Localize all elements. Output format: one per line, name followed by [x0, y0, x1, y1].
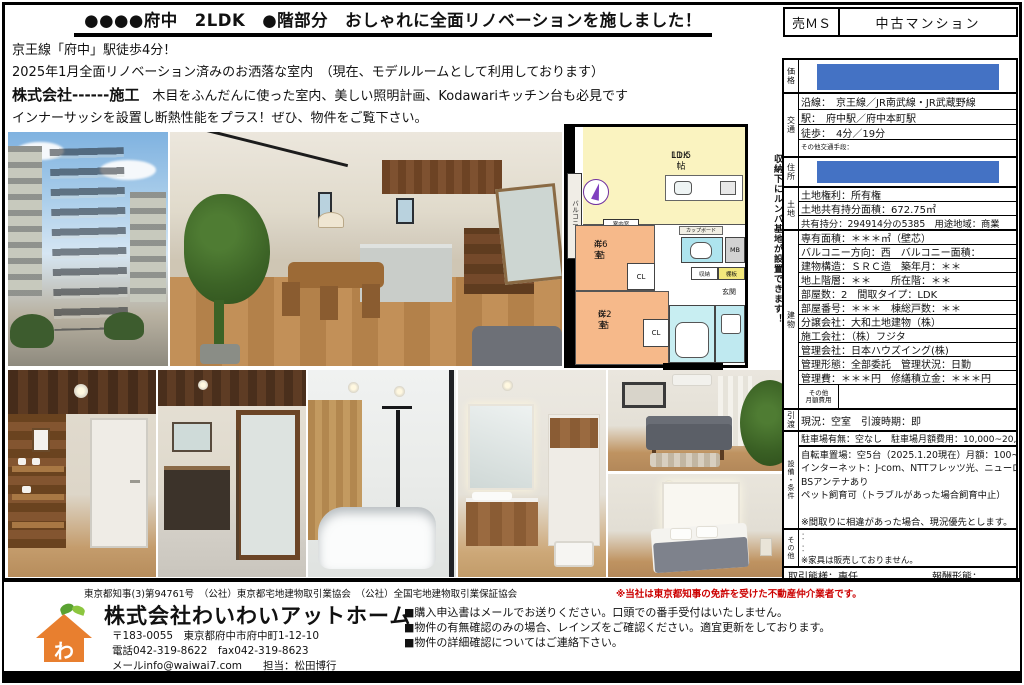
downlight-shape [348, 382, 359, 393]
property-type-cell: 中古マンション [839, 7, 1018, 37]
photo-living-dining [170, 132, 562, 366]
nightstand-shape [760, 538, 772, 556]
washer-pan-shape [554, 541, 594, 567]
photo-bathroom [308, 370, 456, 577]
footer-note-line: ■物件の詳細確認についてはご連絡下さい。 [404, 635, 830, 650]
spec-table: 価格 交通 沿線： 京王線／JR南武線・JR武蔵野線 駅： 府中駅／府中本町駅 … [782, 58, 1018, 584]
sofa-shape [646, 416, 732, 450]
downlight-shape [198, 380, 208, 390]
sale-code-cell: 売ＭＳ [783, 7, 840, 37]
plan-stove [720, 181, 736, 195]
track-light-shape [202, 132, 348, 167]
table-row: 沿線： 京王線／JR南武線・JR武蔵野線 [799, 94, 1016, 110]
bathtub-shape [318, 507, 436, 569]
other-section: その他 ： ： ※家具は販売しておりません。 [784, 530, 1016, 568]
wood-ceiling-shape [382, 160, 502, 194]
main-building-shape [50, 147, 129, 331]
table-row: 共有持分：294914分の5385 用途地域：商業 [799, 216, 1016, 229]
sofa-leg-shape [720, 450, 724, 460]
plan-closet-label: CL [628, 273, 654, 281]
address-section: 住所 [784, 158, 1016, 188]
photo-entrance-hall [8, 370, 156, 577]
chair-shape [282, 282, 300, 316]
company-logo: わ [34, 604, 94, 662]
table-row: バルコニー方向：西 バルコニー面積： [799, 245, 1016, 259]
decor-cup-shape [32, 458, 40, 465]
door-frame-shape [236, 430, 239, 560]
equipment-note-line: BSアンテナあり [801, 476, 1014, 490]
equipment-note-line: インターネット：J-com、NTTフレッツ光、ニューロ光 [801, 462, 1014, 476]
plan-room-size: 11.5帖 [671, 151, 691, 173]
plan-kitchen-counter [665, 175, 743, 201]
equipment-notes: 自転車置場：空5台（2025.1.20現在）月額：100~300円 インターネッ… [799, 447, 1016, 528]
small-window-shape [396, 198, 414, 224]
description-line: 2025年1月全面リノベーション済みのお洒落な室内 （現在、モデルルームとして利… [12, 62, 778, 84]
plan-entrance-label: 玄関 [722, 287, 736, 297]
floor-plan-outline: LDK 11.5帖 バルコニー 室内窓 洋室 4.6帖 CL カップボード [564, 124, 748, 368]
equipment-section: 設備・条件 駐車場有無：空なし 駐車場月額費用：10,000~20,000円 自… [784, 432, 1016, 530]
plan-toilet-bowl [690, 242, 712, 259]
land-section: 土地 土地権利：所有権 土地共有持分面積：672.75㎡ 共有持分：294914… [784, 188, 1016, 231]
tree-shape [104, 312, 144, 340]
table-row: 管理会社：日本ハウズイング(株) [799, 343, 1016, 357]
table-row: 分譲会社：大和土地建物（株） [799, 315, 1016, 329]
art-frame-shape [32, 428, 50, 452]
price-redaction-box [817, 64, 999, 90]
description-line: 京王線「府中」駅徒歩4分！ [12, 40, 778, 62]
handover-section: 引渡 現況：空室 引渡時期：即 [784, 410, 1016, 432]
door-handle-shape [130, 480, 140, 483]
blanket-shape [653, 537, 749, 573]
description-line: 株式会社------施工 木目をふんだんに使った室内、美しい照明計画、Kodaw… [12, 84, 778, 108]
floor-plan: LDK 11.5帖 バルコニー 室内窓 洋室 4.6帖 CL カップボード [564, 124, 786, 368]
equipment-section-label: 設備・条件 [784, 432, 799, 528]
plan-closet-label: CL [644, 329, 668, 337]
white-door-shape [90, 418, 148, 548]
equipment-note-line: ※間取りに相違があった場合、現況優先とします。 [801, 516, 1014, 528]
laundry-cabinet-shape [550, 418, 598, 448]
photo-bedroom [608, 474, 786, 577]
land-section-label: 土地 [784, 188, 799, 229]
shelf-shape [12, 466, 64, 472]
plant-stem-shape [214, 300, 224, 350]
table-row: 管理形態：全部委託 管理状況：日勤 [799, 357, 1016, 371]
compass-icon [583, 179, 609, 205]
address-section-label: 住所 [784, 158, 799, 186]
description-block: 京王線「府中」駅徒歩4分！ 2025年1月全面リノベーション済みのお洒落な室内 … [12, 40, 778, 130]
footer-note-line: ■物件の有無確認のみの場合、レインズをご確認ください。適宜更新をしております。 [404, 620, 830, 635]
footer-note-line: ■購入申込書はメールでお送りください。口頭での番手受付はいたしません。 [404, 605, 830, 620]
plan-closet-2: CL [643, 319, 669, 347]
table-row: その他交通手段： [799, 140, 1016, 156]
wood-ceiling-shape [158, 370, 306, 406]
plan-bathtub [675, 322, 709, 358]
downlight-shape [74, 384, 88, 398]
equipment-note-line: ペット飼育可（トラブルがあった場合飼育中止） [801, 489, 1014, 503]
plant-shape [184, 194, 270, 304]
neighbor-building-shape [130, 192, 166, 302]
chair-shape [320, 286, 338, 320]
property-type: 中古マンション [875, 13, 980, 32]
rug-shape [650, 453, 720, 467]
downlight-shape [394, 386, 405, 397]
chair-shape [362, 284, 380, 318]
other-row: ： [801, 543, 1014, 555]
kitchen-counter-shape [164, 466, 230, 530]
photo-sofa-room [608, 370, 786, 471]
plan-sink [674, 181, 692, 195]
building-section-label: 建物 [784, 231, 799, 408]
shelf-shape [12, 522, 64, 528]
other-row: ： [801, 531, 1014, 543]
company-name: 株式会社わいわいアットホーム [104, 600, 411, 630]
plan-washer [721, 314, 741, 334]
page-title: ●●●●府中 2LDK ●階部分 おしゃれに全面リノベーションを施しました！ [10, 8, 776, 36]
photo-kitchen-corridor [158, 370, 306, 577]
logo-leaf-shape [71, 604, 86, 616]
plan-shelf: 棚板 [718, 267, 745, 280]
description-line-rest: 木目をふんだんに使った室内、美しい照明計画、Kodawariキッチン台も必見です [139, 89, 628, 104]
pendant-light-shape [318, 212, 344, 228]
plan-storage-label: 収納 [699, 270, 710, 278]
downlight-shape [502, 380, 513, 391]
plan-room-size: 4.6帖 [594, 240, 608, 262]
planter-shape [200, 344, 240, 364]
plan-entrance: 玄関 [713, 284, 745, 300]
shower-column-shape [396, 410, 400, 520]
license-line: 東京都知事(3)第94761号 （公社）東京都宅地建物取引業協会 （公社）全国宅… [84, 586, 517, 600]
plan-mb-label: MB [730, 246, 740, 254]
table-row: 専有面積：＊＊＊㎡（壁芯） [799, 231, 1016, 245]
price-section: 価格 [784, 60, 1016, 94]
plan-toilet [681, 237, 723, 263]
price-section-label: 価格 [784, 60, 799, 92]
logo-house-shape: わ [44, 636, 84, 662]
page-title-text: ●●●●府中 2LDK ●階部分 おしゃれに全面リノベーションを施しました！ [74, 7, 712, 37]
company-phone: 電話042-319-8622 fax042-319-8623 [112, 643, 309, 658]
address-redaction-box [817, 161, 999, 183]
table-row: 施工会社：（株）フジタ [799, 329, 1016, 343]
plan-storage: 収納 [691, 267, 718, 280]
footer-notes: ■購入申込書はメールでお送りください。口頭での番手受付はいたしません。 ■物件の… [404, 605, 830, 650]
logo-character: わ [54, 635, 74, 664]
table-row: 駅： 府中駅／府中本町駅 [799, 110, 1016, 125]
table-row: 管理費：＊＊＊円 修繕積立金：＊＊＊円 [799, 371, 1016, 385]
other-section-label: その他 [784, 530, 799, 566]
monthly-other-value [839, 385, 1016, 408]
glass-panel-edge-shape [449, 370, 454, 577]
plan-washroom [715, 305, 745, 363]
equipment-note-line [801, 503, 1014, 516]
other-row: ※家具は販売しておりません。 [801, 555, 1014, 567]
plan-room-size: 6.2帖 [598, 310, 612, 332]
decor-cup-shape [22, 486, 31, 493]
sofa-corner-shape [472, 326, 562, 366]
transport-section: 交通 沿線： 京王線／JR南武線・JR武蔵野線 駅： 府中駅／府中本町駅 徒歩：… [784, 94, 1016, 158]
vanity-cabinet-shape [466, 498, 538, 546]
decor-cup-shape [18, 458, 26, 465]
plan-wall [567, 127, 575, 173]
table-row: 部屋数：2 間取タイプ：LDK [799, 287, 1016, 301]
table-row: 徒歩： 4分／19分 [799, 125, 1016, 140]
table-row: 土地権利：所有権 [799, 188, 1016, 202]
builder-name: 株式会社------施工 [12, 86, 139, 104]
glass-door-shape [236, 410, 300, 560]
vanity-mirror-shape [468, 404, 534, 490]
table-row: 部屋番号：＊＊＊ 棟総戸数：＊＊ [799, 301, 1016, 315]
building-section: 建物 専有面積：＊＊＊㎡（壁芯） バルコニー方向：西 バルコニー面積： 建物構造… [784, 231, 1016, 410]
plan-closet-1: CL [627, 263, 655, 290]
monthly-other-row: その他 月額費用 [799, 385, 1016, 408]
air-conditioner-shape [672, 374, 712, 386]
table-row: 駐車場有無：空なし 駐車場月額費用：10,000~20,000円 [799, 432, 1016, 447]
table-row: 現況：空室 引渡時期：即 [799, 410, 1016, 430]
pillow-shape [670, 528, 692, 540]
equipment-note-line: 自転車置場：空5台（2025.1.20現在）月額：100~300円 [801, 449, 1014, 463]
compass-needle [591, 182, 603, 200]
roomba-note: 収納下にルンバ基地が設置できます！ [750, 126, 784, 351]
plan-cupboard: カップボード [679, 226, 723, 235]
license-note-red: ※当社は東京都知事の免許を受けた不動産仲介業者です。 [616, 586, 862, 600]
plan-cupboard-label: カップボード [686, 227, 716, 234]
interior-window-shape [495, 183, 562, 285]
company-address: 〒183-0055 東京都府中市府中町1-12-10 [112, 628, 319, 643]
table-row: 地上階層：＊＊ 所在階：＊＊ [799, 273, 1016, 287]
shelf-shape [12, 494, 64, 500]
handover-section-label: 引渡 [784, 410, 799, 430]
table-row: 土地共有持分面積：672.75㎡ [799, 202, 1016, 216]
art-frame-shape [622, 382, 666, 408]
transport-section-label: 交通 [784, 94, 799, 156]
plan-shelf-label: 棚板 [726, 270, 737, 278]
neighbor-building-shape [8, 146, 42, 296]
footer: 東京都知事(3)第94761号 （公社）東京都宅地建物取引業協会 （公社）全国宅… [4, 578, 1020, 681]
photo-vanity-laundry [458, 370, 606, 577]
table-row: 建物構造：ＳＲＣ造 築年月：＊＊ [799, 259, 1016, 273]
monthly-other-label: その他 月額費用 [799, 385, 839, 408]
plan-meter-box: MB [725, 237, 745, 263]
tree-shape [10, 314, 54, 348]
shower-arm-shape [382, 406, 412, 409]
small-window-shape [172, 422, 212, 452]
sink-counter-shape [472, 492, 512, 500]
sale-code: 売ＭＳ [792, 13, 831, 32]
bottom-black-bar [4, 671, 1020, 681]
flyer-page: ●●●●府中 2LDK ●階部分 おしゃれに全面リノベーションを施しました！ 売… [0, 0, 1024, 685]
photo-building-exterior [8, 132, 168, 366]
plan-wall [567, 259, 575, 365]
plan-bathroom [669, 305, 715, 363]
pillow-shape [696, 526, 718, 538]
